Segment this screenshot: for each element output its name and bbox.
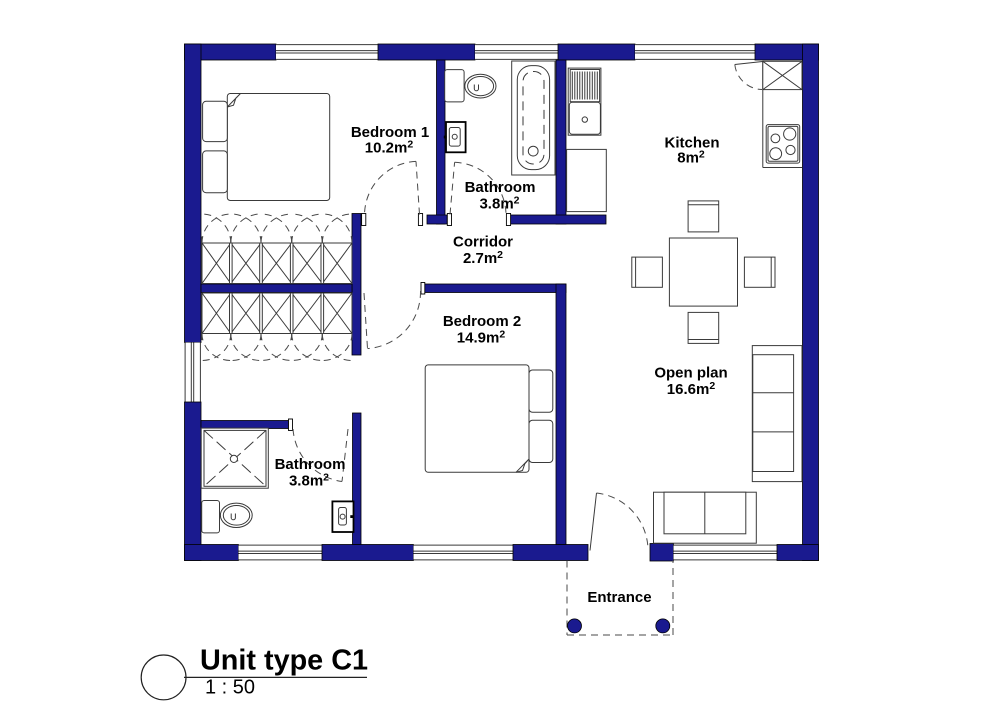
svg-text:Open plan: Open plan: [654, 365, 727, 382]
svg-text:Bedroom 2: Bedroom 2: [443, 313, 521, 330]
svg-text:Bedroom 1: Bedroom 1: [351, 124, 429, 141]
svg-text:Bathroom: Bathroom: [275, 456, 346, 473]
svg-text:1 : 50: 1 : 50: [205, 677, 255, 699]
svg-text:Bathroom: Bathroom: [465, 179, 536, 196]
svg-text:10.2m2: 10.2m2: [365, 139, 414, 157]
svg-text:3.8m2: 3.8m2: [479, 195, 519, 213]
svg-text:Entrance: Entrance: [587, 589, 651, 606]
svg-text:14.9m2: 14.9m2: [457, 329, 506, 347]
svg-text:Unit type C1: Unit type C1: [200, 645, 368, 677]
svg-text:Corridor: Corridor: [453, 234, 513, 251]
svg-text:16.6m2: 16.6m2: [667, 380, 716, 398]
svg-text:3.8m2: 3.8m2: [289, 472, 329, 490]
svg-text:2.7m2: 2.7m2: [463, 249, 503, 267]
